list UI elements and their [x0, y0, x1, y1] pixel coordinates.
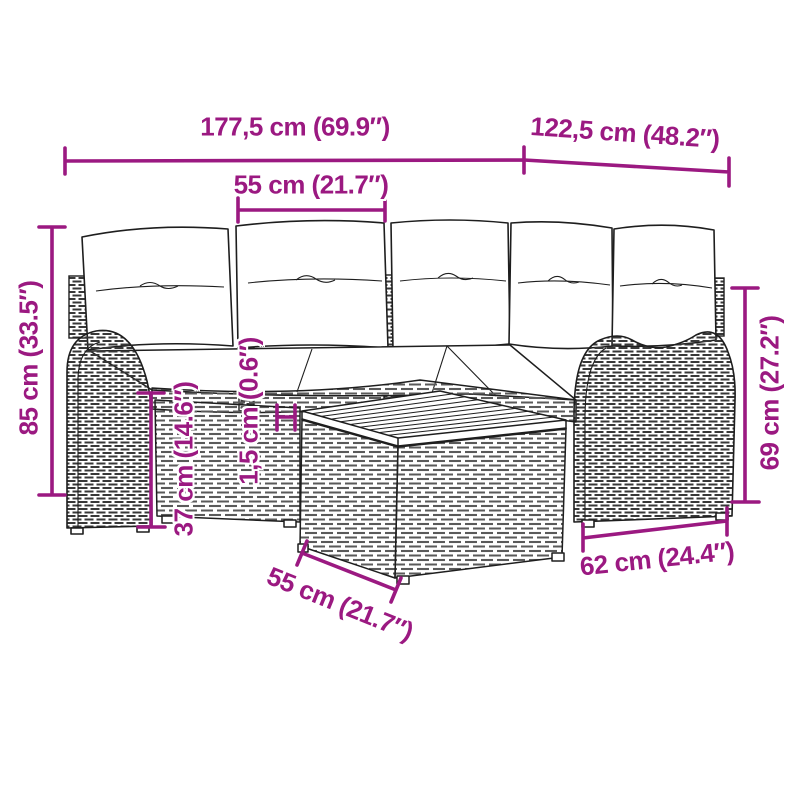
dimension-label-seat-width: 55 cm (21.7″) — [234, 170, 389, 201]
back-cushions — [82, 220, 716, 351]
right-armrest — [574, 332, 735, 527]
dimension-label-seat-height: 37 cm (14.6″) — [169, 382, 200, 537]
coffee-table — [298, 391, 566, 584]
dimension-label-armrest-height: 69 cm (27.2″) — [755, 316, 786, 471]
furniture-line-art-canvas — [0, 0, 800, 800]
dimension-label-sofa-total-height: 85 cm (33.5″) — [14, 281, 45, 436]
dimension-label-cushion-thickness: 1,5 cm (0.6″) — [234, 337, 265, 485]
dimension-diagram-page: 177,5 cm (69.9″) 122,5 cm (48.2″) 55 cm … — [0, 0, 800, 800]
dimension-label-sofa-total-width: 177,5 cm (69.9″) — [200, 112, 389, 143]
left-armrest — [67, 330, 152, 534]
